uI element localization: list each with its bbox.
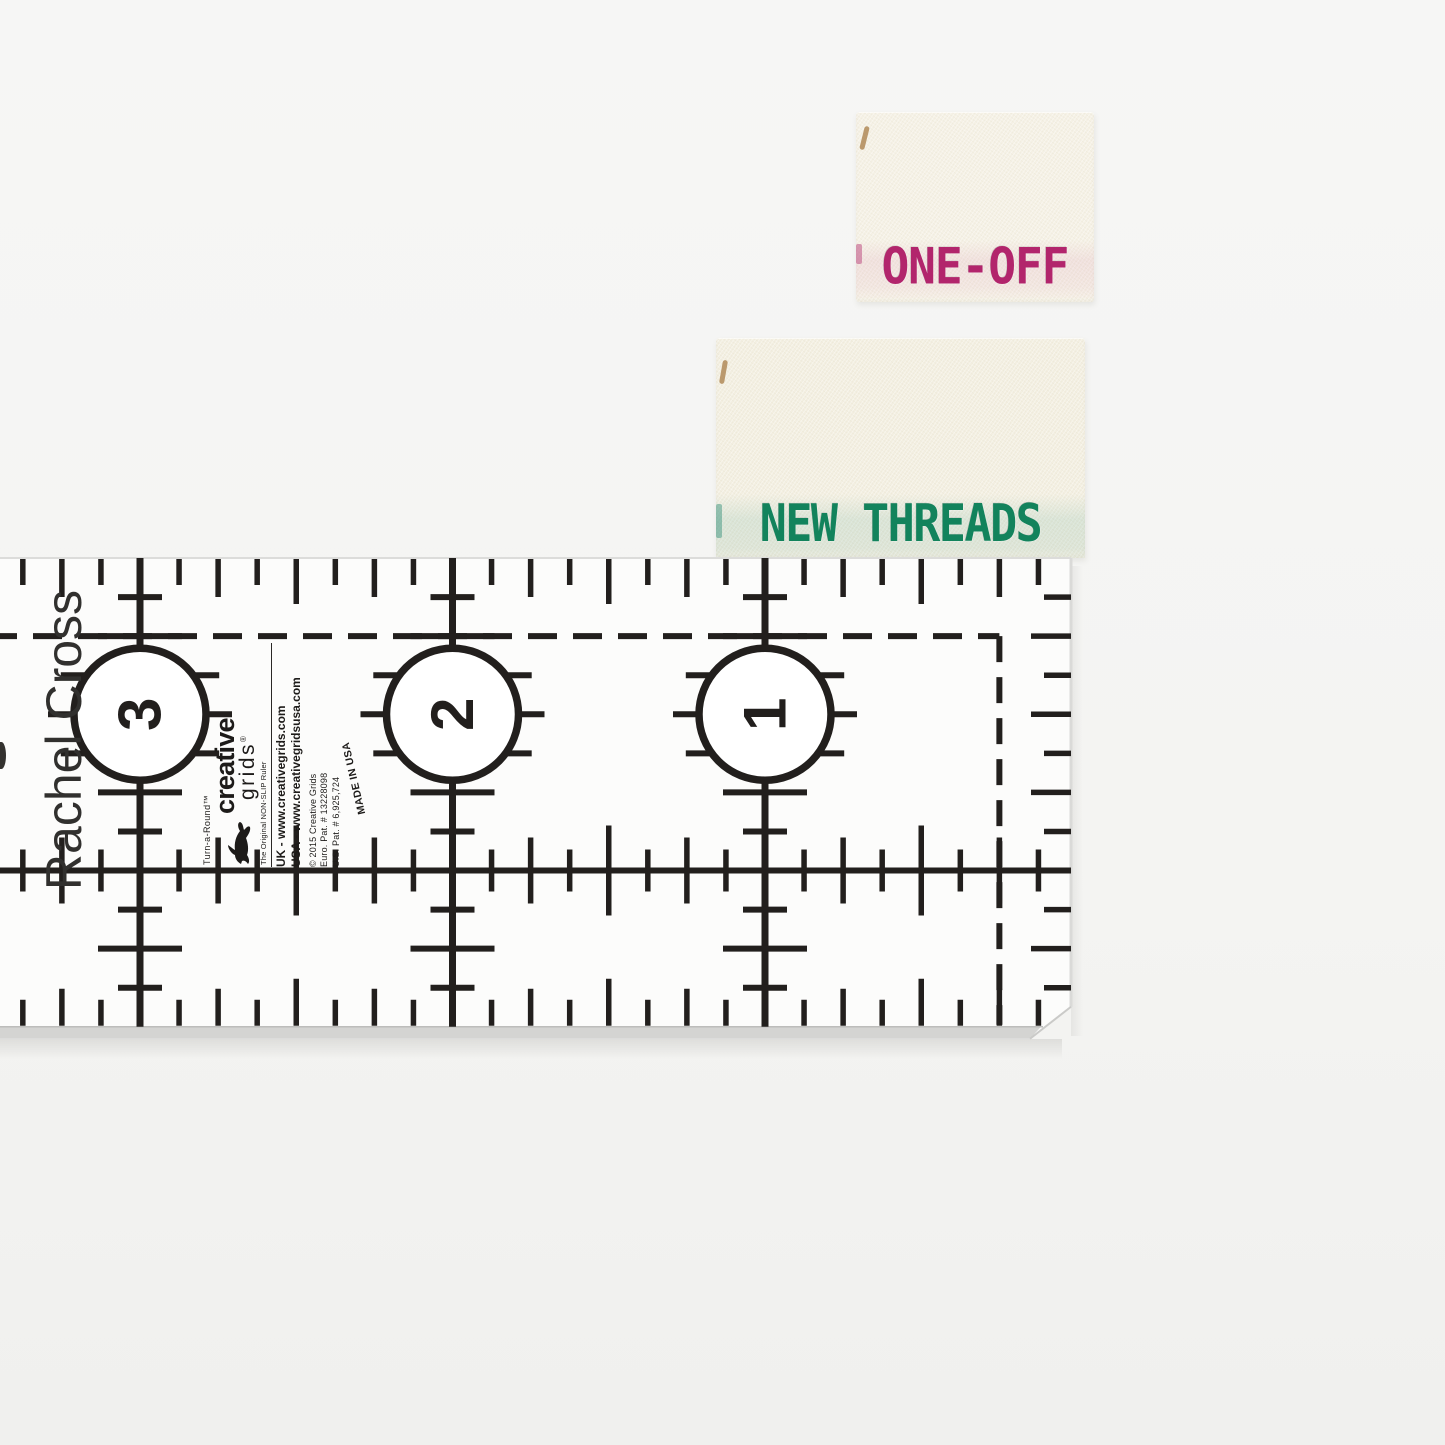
inch-number: 3: [107, 698, 174, 731]
registered-mark: ®: [239, 734, 248, 742]
ruler-brand-block: Turn-a-Round™ creative grids® The Origin…: [203, 643, 421, 867]
brand-euro-patent: Euro. Pat. # 13228098: [320, 643, 329, 867]
brand-made-in: MADE IN USA: [341, 741, 368, 815]
brand-us-patent: U.S. Pat. # 6,925,724: [332, 643, 341, 867]
brand-name-primary: creative: [213, 718, 238, 814]
ruler-surface: [0, 558, 1071, 1039]
brand-logo: creative grids®: [213, 643, 257, 867]
brand-uk-url: UK - www.creativegrids.com: [271, 643, 288, 867]
brand-name-secondary: grids®: [238, 718, 257, 800]
brand-usa-url: USA - www.creativegridsusa.com: [290, 643, 303, 867]
inch-number: 1: [732, 698, 799, 731]
ruler-bottom-edge: [0, 1027, 1041, 1039]
hare-logo-icon: [227, 819, 258, 867]
brand-tagline: The Original NON-SLIP Ruler: [260, 643, 268, 865]
ruler-owner-name: Rachel Cross: [35, 580, 95, 900]
product-photo: ONE-OFF NEW THREADS 321 Turn-a-Round™ cr…: [0, 0, 1445, 1445]
brand-copyright: © 2015 Creative Grids: [309, 643, 318, 867]
inch-number: 2: [419, 698, 486, 731]
